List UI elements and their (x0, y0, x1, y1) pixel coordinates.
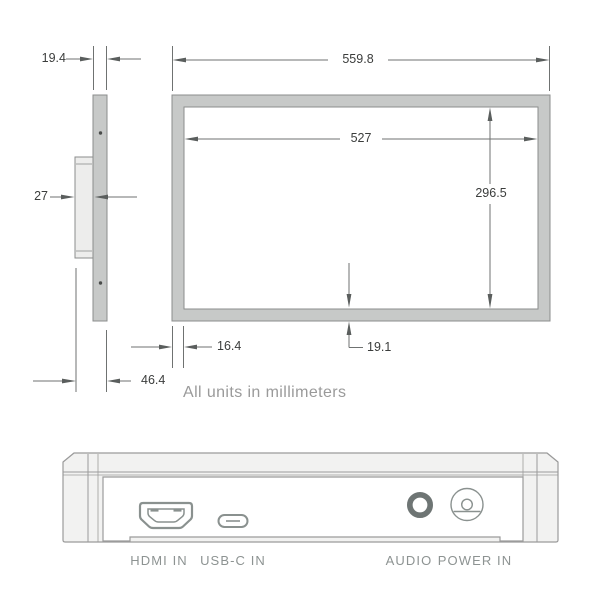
dim-panel-thickness (66, 46, 141, 90)
side-bezel-value: 16.4 (217, 340, 241, 353)
screw-hole-top (99, 131, 102, 134)
dim-side-bezel (131, 326, 212, 368)
active-height-value: 296.5 (462, 187, 520, 200)
monitor-front-view (172, 95, 550, 321)
ports-view-diagram (0, 430, 600, 604)
active-width-value: 527 (338, 132, 384, 145)
device-body (63, 453, 558, 542)
panel-side-profile (93, 95, 107, 321)
monitor-side-view (75, 95, 107, 321)
bottom-bezel-value: 19.1 (367, 341, 391, 354)
dimension-drawing-page: 19.4 559.8 527 296.5 27 16.4 19.1 46.4 A… (0, 0, 600, 604)
usbc-port-label: USB-C IN (188, 553, 278, 568)
power-jack-icon (451, 489, 483, 521)
mount-depth-value: 27 (22, 190, 48, 203)
total-depth-value: 46.4 (141, 374, 165, 387)
power-port-label: POWER IN (428, 553, 522, 568)
usbc-port-icon (219, 515, 248, 527)
hdmi-port-icon (140, 503, 192, 528)
units-note: All units in millimeters (183, 384, 346, 402)
screw-hole-bottom (99, 281, 102, 284)
mount-box (75, 157, 93, 258)
dimension-diagram (0, 0, 600, 430)
overall-width-value: 559.8 (328, 53, 388, 66)
audio-jack-icon (410, 495, 430, 515)
panel-thickness-value: 19.4 (36, 52, 66, 65)
dim-total-depth (33, 268, 131, 392)
